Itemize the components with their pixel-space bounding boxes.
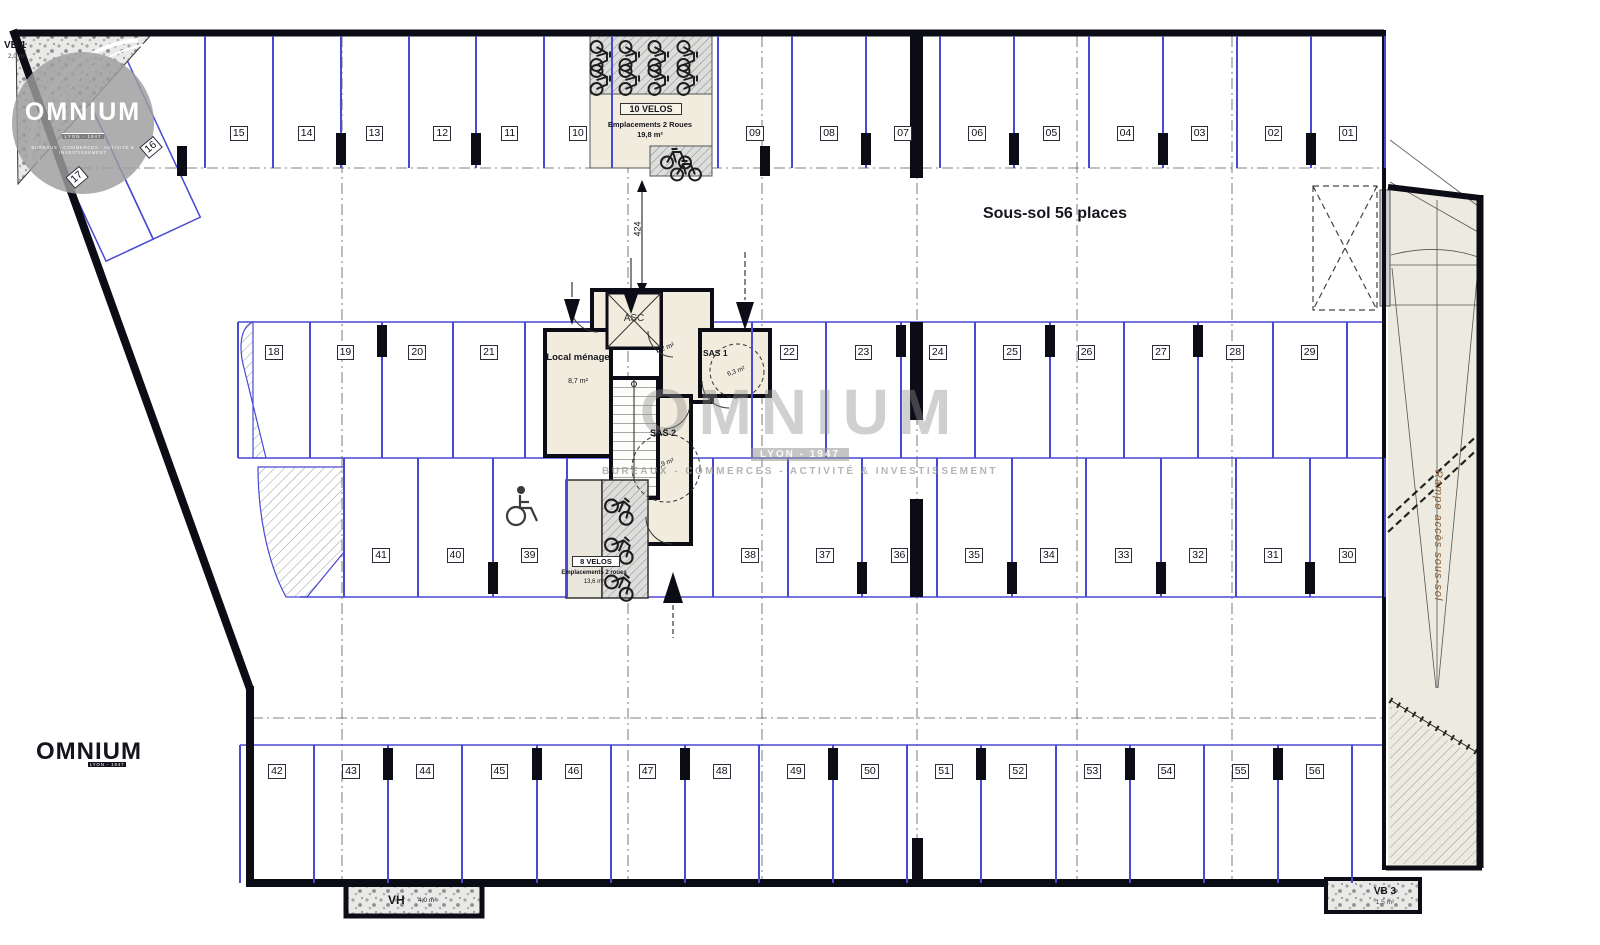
parking-space-53: 53	[1084, 764, 1102, 779]
vb3-name: VB 3	[1355, 886, 1415, 897]
parking-space-49: 49	[787, 764, 805, 779]
structural-pillar	[1158, 133, 1168, 165]
stall-divider	[611, 36, 613, 168]
parking-space-43: 43	[342, 764, 360, 779]
parking-space-45: 45	[491, 764, 509, 779]
stall-divider	[417, 458, 419, 597]
structural-pillar	[976, 748, 986, 780]
structural-pillar	[896, 325, 906, 357]
stall-divider	[566, 458, 568, 597]
corner-logo: OMNIUM LYON - 1947	[36, 740, 142, 767]
structural-pillar	[1009, 133, 1019, 165]
plan-title: Sous-sol 56 places	[955, 205, 1155, 223]
parking-space-23: 23	[855, 345, 873, 360]
sas1-name: SAS 1	[703, 348, 728, 358]
parking-space-09: 09	[746, 126, 764, 141]
parking-space-35: 35	[965, 548, 983, 563]
parking-space-12: 12	[433, 126, 451, 141]
stall-divider	[610, 745, 612, 883]
parking-space-37: 37	[816, 548, 834, 563]
stall-divider	[1236, 36, 1238, 168]
parking-space-03: 03	[1191, 126, 1209, 141]
stall-divider	[237, 322, 239, 458]
stall-divider	[309, 322, 311, 458]
parking-space-44: 44	[416, 764, 434, 779]
structural-pillar	[857, 562, 867, 594]
stall-divider	[787, 458, 789, 597]
ramp-label: Rampe accès sous-sol	[1432, 470, 1444, 660]
dimension-label: 424	[633, 221, 643, 236]
structural-pillar	[1306, 133, 1316, 165]
structural-pillar	[1045, 325, 1055, 357]
vb1-name: VB 1	[4, 40, 26, 51]
parking-space-26: 26	[1078, 345, 1096, 360]
parking-space-31: 31	[1264, 548, 1282, 563]
bike-room-mid-name: 8 VELOS	[572, 556, 620, 567]
stall-divider	[343, 458, 345, 597]
structural-pillar	[861, 133, 871, 165]
stall-divider	[239, 745, 241, 883]
parking-space-54: 54	[1158, 764, 1176, 779]
vh-area: 4,0 m²	[418, 897, 436, 904]
stall-divider	[1351, 745, 1353, 883]
vh-name: VH	[388, 893, 405, 907]
stall-divider	[1272, 322, 1274, 458]
stall-divider	[1203, 745, 1205, 883]
structural-pillar	[336, 133, 346, 165]
stall-divider	[313, 745, 315, 883]
logo-stamp-subtitle: BUREAUX - COMMERCES - ACTIVITÉ & INVESTI…	[12, 145, 154, 155]
structural-pillar	[1273, 748, 1283, 780]
bike-room-mid-area: 13,6 m²	[556, 579, 632, 585]
structural-pillar	[1007, 562, 1017, 594]
parking-space-27: 27	[1152, 345, 1170, 360]
corner-logo-badge: LYON - 1947	[88, 762, 126, 767]
parking-space-10: 10	[569, 126, 587, 141]
ramp-area	[1380, 140, 1481, 868]
stall-divider	[1088, 36, 1090, 168]
stall-divider	[712, 458, 714, 597]
stall-divider	[272, 36, 274, 168]
stall-divider	[906, 745, 908, 883]
stall-divider	[1384, 36, 1386, 168]
elevator-label: ASC	[607, 313, 661, 324]
structural-pillar	[680, 748, 690, 780]
parking-space-18: 18	[265, 345, 283, 360]
stall-divider	[524, 322, 526, 458]
parking-space-51: 51	[935, 764, 953, 779]
parking-space-21: 21	[480, 345, 498, 360]
parking-space-52: 52	[1009, 764, 1027, 779]
corner-logo-text: OMNIUM	[36, 740, 142, 764]
stall-divider	[939, 36, 941, 168]
stall-divider	[1384, 458, 1386, 597]
stall-divider	[461, 745, 463, 883]
parking-space-41: 41	[372, 548, 390, 563]
parking-space-48: 48	[713, 764, 731, 779]
stall-divider	[758, 745, 760, 883]
parking-space-34: 34	[1040, 548, 1058, 563]
stall-divider	[825, 322, 827, 458]
parking-space-50: 50	[861, 764, 879, 779]
parking-space-06: 06	[968, 126, 986, 141]
parking-space-55: 55	[1232, 764, 1250, 779]
parking-space-19: 19	[337, 345, 355, 360]
stall-divider	[1123, 322, 1125, 458]
structural-pillar	[532, 748, 542, 780]
stall-divider	[791, 36, 793, 168]
bike-room-top-name: 10 VELOS	[620, 103, 682, 115]
stall-divider	[717, 36, 719, 168]
structural-pillar	[828, 748, 838, 780]
parking-space-15: 15	[230, 126, 248, 141]
parking-space-56: 56	[1306, 764, 1324, 779]
bike-room-top-area: 19,8 m²	[600, 130, 700, 139]
stall-divider	[936, 458, 938, 597]
logo-stamp-badge: LYON - 1947	[62, 133, 105, 139]
structural-pillar	[1125, 748, 1135, 780]
parking-space-22: 22	[780, 345, 798, 360]
reserved-zone-dashed	[1313, 186, 1377, 310]
parking-space-04: 04	[1117, 126, 1135, 141]
structural-pillar	[1193, 325, 1203, 357]
parking-space-46: 46	[565, 764, 583, 779]
floor-plan-page: OMNIUM LYON - 1947 BUREAUX - COMMERCES -…	[0, 0, 1600, 945]
parking-space-36: 36	[891, 548, 909, 563]
stall-divider	[1235, 458, 1237, 597]
parking-space-08: 08	[820, 126, 838, 141]
parking-space-14: 14	[298, 126, 316, 141]
structural-pillar	[471, 133, 481, 165]
parking-space-20: 20	[408, 345, 426, 360]
stall-divider	[204, 36, 206, 168]
parking-space-25: 25	[1003, 345, 1021, 360]
bike-room-top-desc: Emplacements 2 Roues	[600, 120, 700, 129]
parking-space-11: 11	[501, 126, 518, 141]
parking-space-32: 32	[1189, 548, 1207, 563]
logo-stamp-text: OMNIUM	[12, 100, 154, 125]
parking-space-42: 42	[268, 764, 286, 779]
unusable-hatch-zones	[241, 322, 344, 597]
parking-space-47: 47	[639, 764, 657, 779]
bike-room-mid-desc: Emplacements 2 roues	[556, 570, 632, 576]
parking-space-02: 02	[1265, 126, 1283, 141]
stall-divider	[1055, 745, 1057, 883]
local-menage-area: 8,7 m²	[546, 378, 610, 385]
stall-divider	[452, 322, 454, 458]
stall-divider	[1346, 322, 1348, 458]
parking-space-24: 24	[929, 345, 947, 360]
sas2-name: SAS 2	[650, 428, 676, 438]
local-menage-name: Local ménage	[546, 352, 610, 363]
parking-space-05: 05	[1043, 126, 1061, 141]
vh-shaft	[346, 884, 482, 916]
parking-space-29: 29	[1301, 345, 1319, 360]
stall-divider	[408, 36, 410, 168]
parking-space-07: 07	[894, 126, 912, 141]
parking-space-01: 01	[1339, 126, 1357, 141]
parking-space-28: 28	[1226, 345, 1244, 360]
wheelchair-icon	[507, 486, 537, 525]
parking-space-33: 33	[1115, 548, 1133, 563]
stall-divider	[543, 36, 545, 168]
parking-space-38: 38	[741, 548, 759, 563]
stall-divider	[1085, 458, 1087, 597]
parking-space-40: 40	[447, 548, 465, 563]
stall-divider	[974, 322, 976, 458]
parking-space-30: 30	[1339, 548, 1357, 563]
structural-pillar	[1156, 562, 1166, 594]
stall-divider	[751, 322, 753, 458]
structural-pillar	[377, 325, 387, 357]
structural-pillar	[383, 748, 393, 780]
parking-space-39: 39	[521, 548, 539, 563]
parking-space-13: 13	[366, 126, 384, 141]
structural-pillar	[488, 562, 498, 594]
stall-row-edges	[238, 322, 1384, 745]
vb1-area: 2,0 m²	[8, 53, 26, 60]
vb3-area: 1,5 m²	[1355, 899, 1415, 906]
structural-pillar	[1305, 562, 1315, 594]
